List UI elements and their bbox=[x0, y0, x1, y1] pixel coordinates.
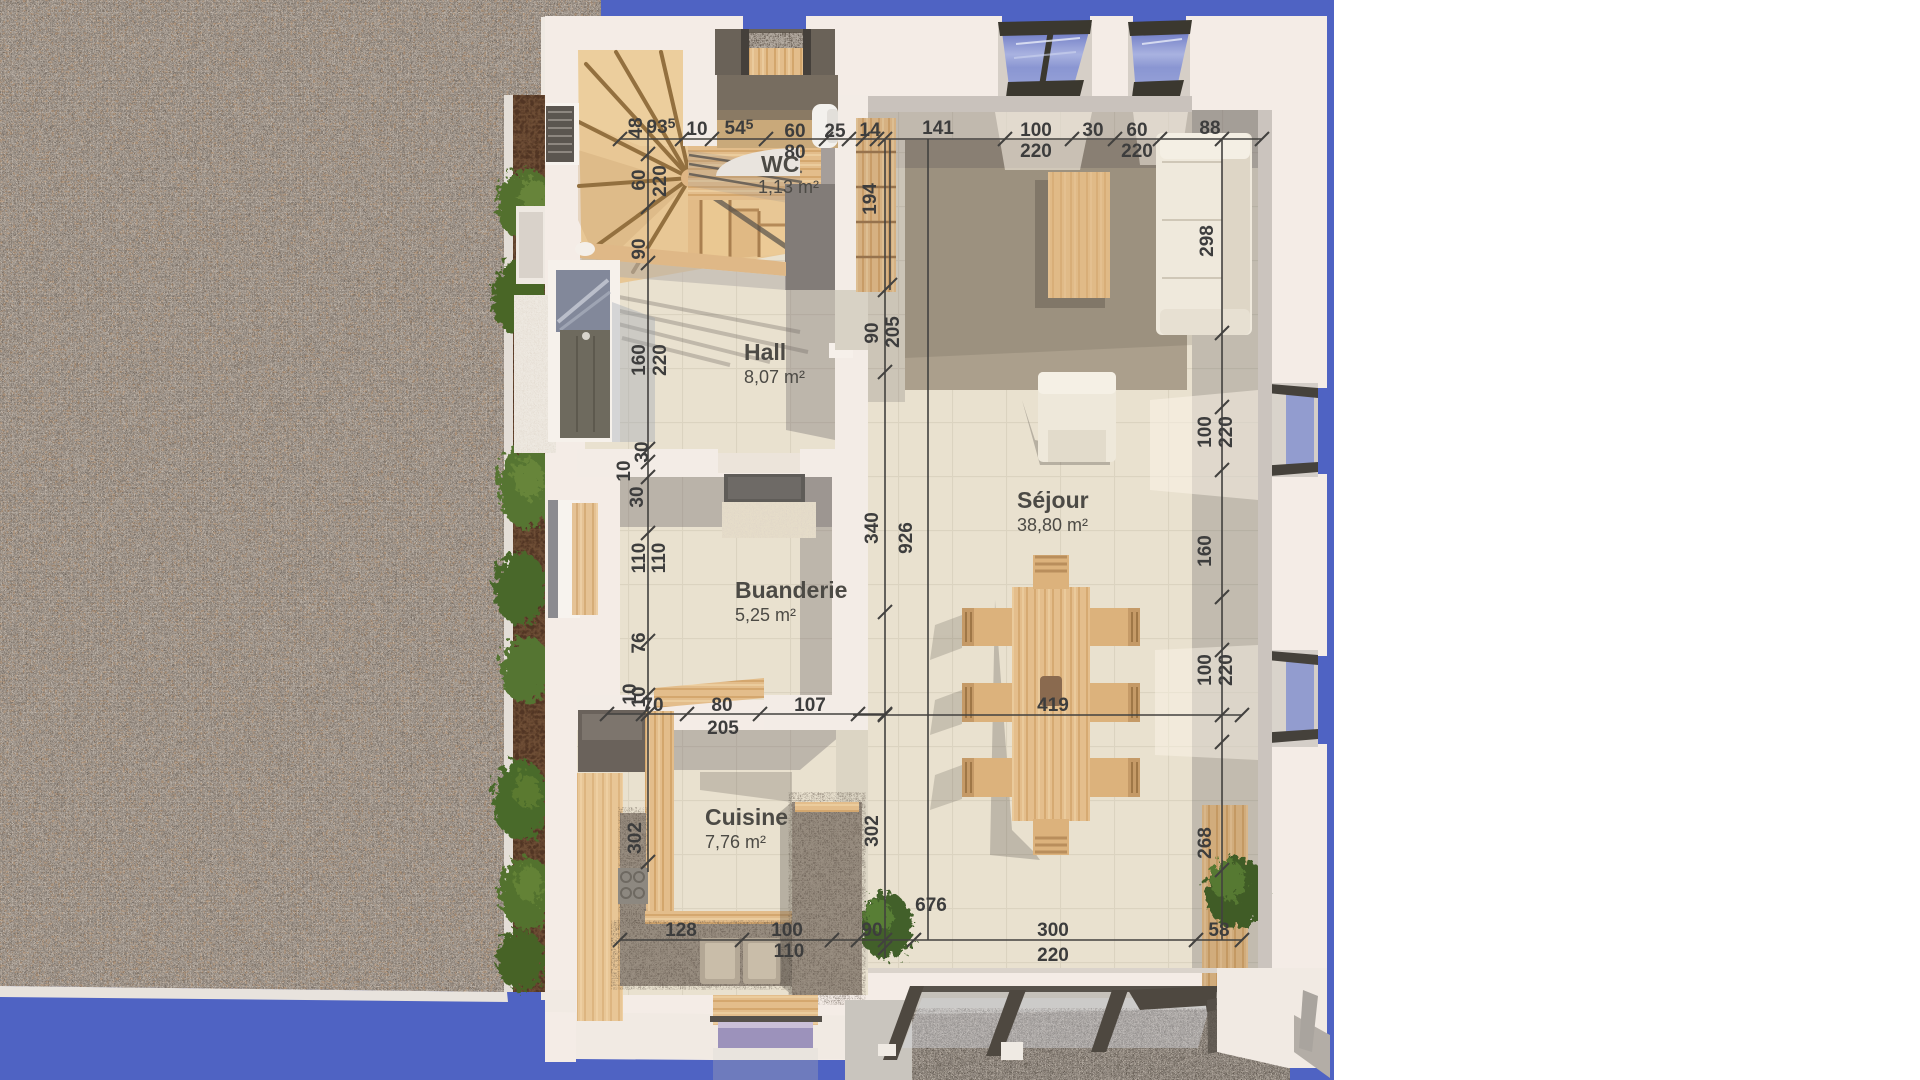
svg-text:220: 220 bbox=[1121, 141, 1153, 162]
svg-text:100: 100 bbox=[771, 920, 803, 941]
svg-text:Hall: Hall bbox=[744, 339, 786, 365]
svg-text:205: 205 bbox=[883, 316, 904, 348]
svg-text:107: 107 bbox=[794, 695, 826, 716]
svg-text:10: 10 bbox=[614, 460, 635, 481]
svg-text:100: 100 bbox=[1020, 120, 1052, 141]
svg-text:58: 58 bbox=[1208, 920, 1229, 941]
svg-text:30: 30 bbox=[1082, 120, 1103, 141]
svg-text:30: 30 bbox=[632, 441, 653, 462]
svg-text:70: 70 bbox=[642, 695, 663, 716]
svg-text:60: 60 bbox=[1126, 120, 1147, 141]
svg-text:100: 100 bbox=[1195, 654, 1216, 686]
svg-text:110: 110 bbox=[629, 543, 650, 574]
svg-text:300: 300 bbox=[1037, 920, 1069, 941]
svg-text:220: 220 bbox=[1020, 141, 1052, 162]
svg-text:Buanderie: Buanderie bbox=[735, 577, 847, 603]
svg-text:302: 302 bbox=[862, 815, 883, 847]
svg-text:Séjour: Séjour bbox=[1017, 487, 1089, 513]
svg-text:1,13 m²: 1,13 m² bbox=[758, 177, 819, 197]
svg-text:160: 160 bbox=[1195, 535, 1216, 567]
svg-text:25: 25 bbox=[824, 121, 846, 142]
svg-text:48: 48 bbox=[626, 117, 647, 138]
svg-text:10: 10 bbox=[620, 683, 641, 704]
svg-text:220: 220 bbox=[650, 344, 671, 376]
svg-text:38,80 m²: 38,80 m² bbox=[1017, 515, 1088, 535]
svg-text:60: 60 bbox=[784, 121, 805, 142]
svg-text:676: 676 bbox=[915, 895, 947, 916]
svg-text:30: 30 bbox=[627, 486, 648, 507]
svg-text:298: 298 bbox=[1197, 225, 1218, 257]
svg-text:340: 340 bbox=[862, 512, 883, 544]
svg-text:5,25 m²: 5,25 m² bbox=[735, 605, 796, 625]
svg-text:7,76 m²: 7,76 m² bbox=[705, 832, 766, 852]
svg-text:88: 88 bbox=[1199, 118, 1220, 139]
svg-text:76: 76 bbox=[629, 632, 650, 653]
svg-text:100: 100 bbox=[1195, 416, 1216, 448]
svg-text:268: 268 bbox=[1195, 827, 1216, 859]
svg-text:90: 90 bbox=[862, 322, 883, 343]
svg-text:10: 10 bbox=[686, 119, 707, 140]
svg-text:220: 220 bbox=[1216, 654, 1237, 686]
svg-text:WC: WC bbox=[761, 151, 799, 177]
svg-text:419: 419 bbox=[1037, 695, 1069, 716]
svg-text:110: 110 bbox=[649, 543, 670, 574]
svg-text:Cuisine: Cuisine bbox=[705, 804, 788, 830]
svg-text:205: 205 bbox=[707, 718, 739, 739]
svg-text:128: 128 bbox=[665, 920, 697, 941]
svg-text:141: 141 bbox=[922, 118, 954, 139]
svg-text:80: 80 bbox=[711, 695, 732, 716]
svg-text:220: 220 bbox=[1216, 416, 1237, 448]
svg-text:220: 220 bbox=[1037, 945, 1069, 966]
svg-text:14: 14 bbox=[859, 120, 881, 141]
svg-text:926: 926 bbox=[896, 522, 917, 554]
svg-text:160: 160 bbox=[629, 344, 650, 376]
svg-text:194: 194 bbox=[860, 183, 881, 215]
svg-text:220: 220 bbox=[650, 165, 671, 197]
svg-text:110: 110 bbox=[774, 941, 805, 962]
svg-text:8,07 m²: 8,07 m² bbox=[744, 367, 805, 387]
svg-text:302: 302 bbox=[625, 822, 646, 854]
svg-text:90: 90 bbox=[629, 238, 650, 259]
svg-text:60: 60 bbox=[629, 169, 650, 190]
svg-text:90: 90 bbox=[861, 920, 882, 941]
